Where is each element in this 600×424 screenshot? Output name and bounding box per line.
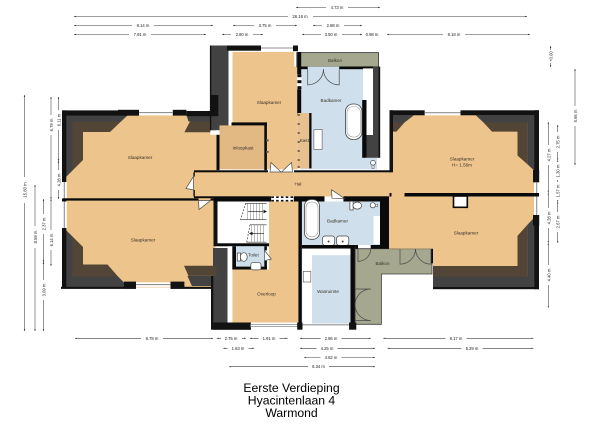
svg-text:4.40 m: 4.40 m: [546, 268, 551, 281]
svg-text:8.78 m: 8.78 m: [146, 336, 159, 341]
svg-text:Badkamer: Badkamer: [327, 219, 348, 224]
svg-text:Overloop: Overloop: [257, 292, 276, 297]
svg-text:8.18 m: 8.18 m: [448, 32, 461, 37]
svg-text:Inloopkast: Inloopkast: [233, 146, 255, 151]
svg-text:+0.00: +0.00: [549, 51, 554, 62]
svg-text:Balkon: Balkon: [328, 58, 342, 63]
svg-text:1.63 m: 1.63 m: [232, 346, 245, 351]
svg-text:2.75 m: 2.75 m: [556, 135, 561, 148]
svg-text:1.91 m: 1.91 m: [263, 336, 276, 341]
svg-text:5.66 m: 5.66 m: [573, 109, 578, 122]
svg-text:Slaapkamer: Slaapkamer: [128, 155, 153, 160]
svg-text:6.79 m: 6.79 m: [49, 118, 54, 131]
svg-text:Hal: Hal: [295, 182, 302, 187]
svg-text:5.29 m: 5.29 m: [466, 346, 479, 351]
svg-text:Slaapkamer: Slaapkamer: [450, 157, 475, 162]
svg-text:Slaapkamer: Slaapkamer: [454, 231, 479, 236]
svg-text:4.25 m: 4.25 m: [321, 346, 334, 351]
svg-text:2.67 m: 2.67 m: [556, 215, 561, 228]
svg-text:Slaapkamer: Slaapkamer: [131, 238, 156, 243]
svg-text:6.14 m: 6.14 m: [49, 233, 54, 246]
svg-text:2.86 m: 2.86 m: [325, 336, 338, 341]
svg-text:26.16 m: 26.16 m: [292, 14, 308, 19]
svg-text:3.09 m: 3.09 m: [42, 283, 47, 296]
svg-text:15.80 m: 15.80 m: [23, 182, 28, 198]
svg-text:8.59 m: 8.59 m: [33, 230, 38, 243]
svg-text:8.17 m: 8.17 m: [450, 336, 463, 341]
svg-text:3.50 m: 3.50 m: [325, 32, 338, 37]
svg-text:2.75 m: 2.75 m: [225, 336, 238, 341]
svg-text:2.37 m: 2.37 m: [42, 217, 47, 230]
svg-text:4.62 m: 4.62 m: [325, 355, 338, 360]
svg-text:1.57 m: 1.57 m: [556, 184, 561, 197]
svg-text:4.27 m: 4.27 m: [546, 148, 551, 161]
svg-text:6.11 m: 6.11 m: [57, 113, 62, 126]
svg-text:8.14 m: 8.14 m: [137, 23, 150, 28]
svg-text:4.28 m: 4.28 m: [546, 211, 551, 224]
svg-text:7.91 m: 7.91 m: [134, 32, 147, 37]
svg-text:1.30 m: 1.30 m: [556, 164, 561, 177]
svg-text:H= 1.56m: H= 1.56m: [452, 163, 472, 168]
svg-text:4.28 m: 4.28 m: [57, 173, 62, 186]
svg-text:Kast: Kast: [300, 138, 310, 143]
svg-text:2.88 m: 2.88 m: [327, 23, 340, 28]
svg-text:3.75 m: 3.75 m: [259, 23, 272, 28]
svg-text:Warmond: Warmond: [265, 406, 317, 420]
svg-text:Balkon: Balkon: [375, 261, 389, 266]
svg-text:Slaapkamer: Slaapkamer: [257, 100, 282, 105]
svg-text:Wasruimte: Wasruimte: [317, 289, 339, 294]
svg-text:2.80 m: 2.80 m: [236, 32, 249, 37]
svg-text:Toilet: Toilet: [248, 253, 259, 258]
svg-text:0.98 m: 0.98 m: [366, 32, 379, 37]
svg-text:4.73 m: 4.73 m: [331, 5, 344, 10]
svg-text:Badkamer: Badkamer: [321, 98, 342, 103]
svg-text:6.34 m: 6.34 m: [312, 364, 325, 369]
